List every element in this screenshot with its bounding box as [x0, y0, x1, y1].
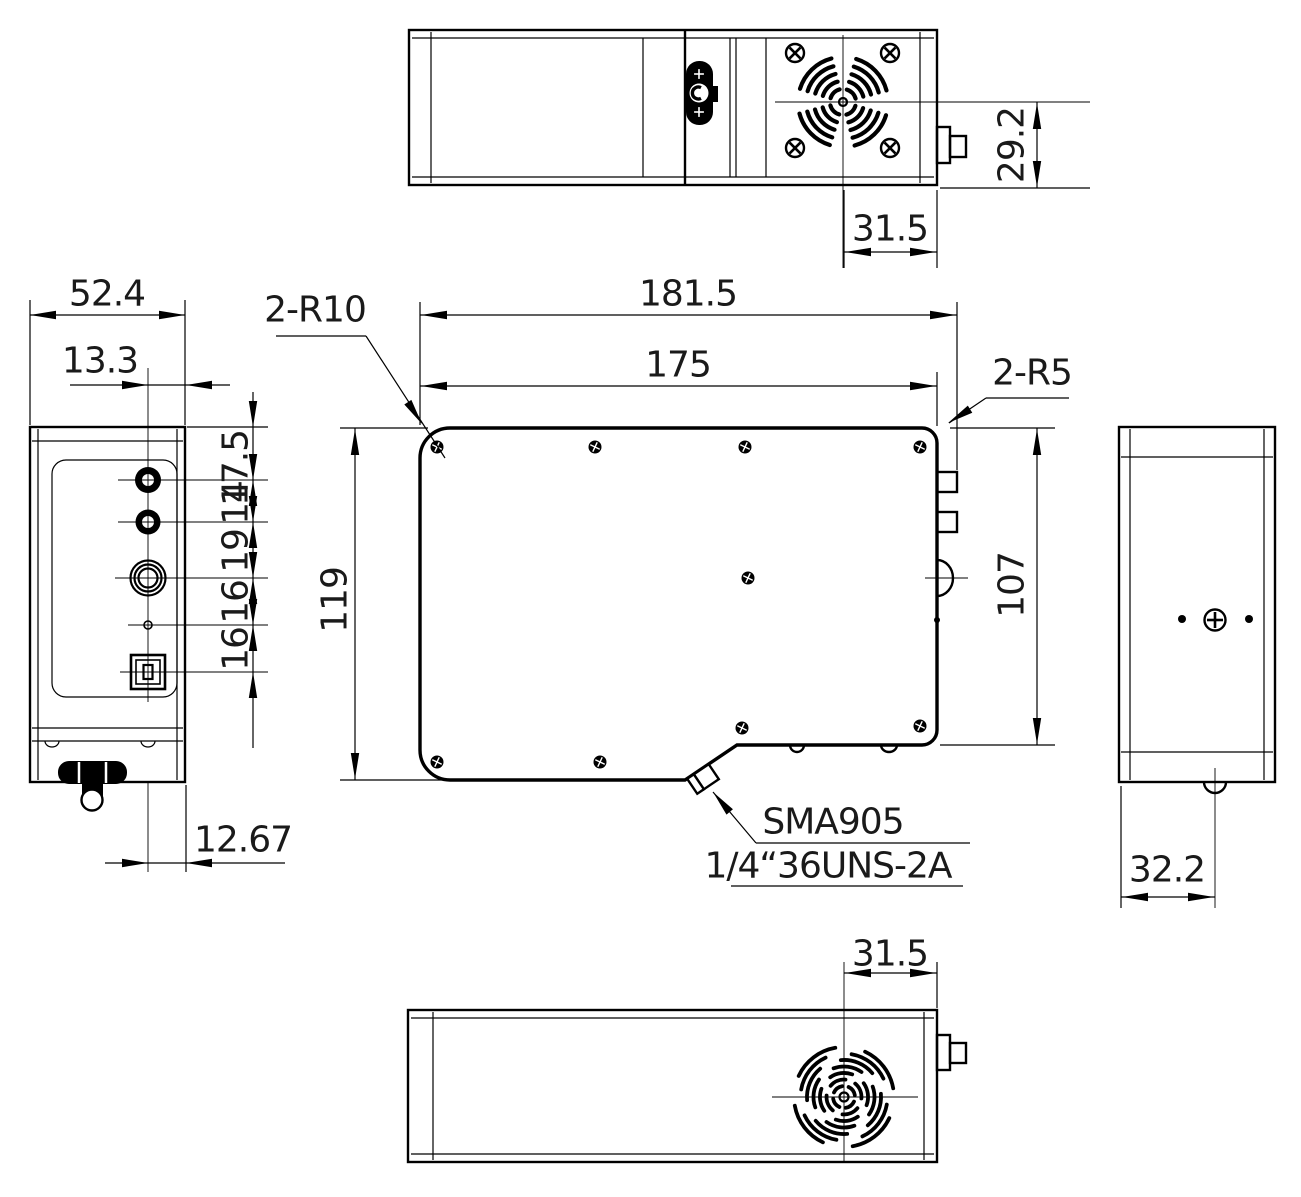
screw-icon: [594, 756, 607, 769]
screw-icon: [742, 572, 755, 585]
dimension-arrow: [1033, 429, 1041, 455]
dim-text-32-2: 32.2: [1129, 850, 1205, 891]
fan-grille-arc: [847, 90, 856, 99]
dim-front-body: 175: [420, 345, 937, 427]
fan-grille-top: [786, 44, 899, 157]
dim-left-center-offset: 13.3: [62, 341, 230, 386]
dimension-arrow: [186, 381, 212, 389]
fan-grille-arc: [830, 1073, 852, 1077]
fan-grille-arc: [800, 59, 831, 89]
dim-text-31-5-bottom: 31.5: [852, 934, 928, 975]
dimension-arrow: [930, 311, 956, 319]
fan-grille-arc: [855, 115, 886, 145]
label-text-thread: 1/4“36UNS-2A: [704, 846, 952, 887]
dim-text-119: 119: [315, 567, 356, 633]
fan-grille-arc: [827, 1122, 855, 1128]
fan-grille-arc: [820, 1089, 824, 1111]
dimension-arrow: [421, 311, 447, 319]
bottom-view: [408, 962, 966, 1163]
dimension-arrow: [351, 753, 359, 779]
fan-grille-arc: [849, 1087, 855, 1095]
top-view-outline: [409, 30, 937, 185]
dimension-arrow: [122, 381, 148, 389]
phillips-screw-icon: [881, 139, 899, 157]
dim-text-12-67: 12.67: [194, 820, 292, 861]
dimension-arrow: [910, 382, 936, 390]
dim-bottom-fan-offset: 31.5: [844, 934, 937, 1009]
top-view-right-connector-flange: [937, 127, 950, 163]
dim-text-52-4: 52.4: [69, 274, 145, 315]
drawing-part: [711, 86, 718, 102]
dimension-arrow: [1033, 718, 1041, 744]
dim-text-107: 107: [992, 552, 1033, 618]
right-view-hole-right: [1245, 615, 1253, 623]
dimension-arrow: [946, 406, 973, 427]
label-text-2-r10: 2-R10: [264, 290, 366, 331]
dim-text-175: 175: [645, 345, 711, 386]
dim-text-29-2: 29.2: [992, 107, 1033, 183]
top-view: [409, 30, 1090, 268]
front-view-screws: [431, 441, 927, 769]
right-tab-1: [937, 472, 957, 492]
fan-grille-arc: [846, 106, 855, 115]
dimension-arrow: [1033, 161, 1041, 187]
dim-text-31-5-top: 31.5: [852, 209, 928, 250]
fan-grille-arc: [836, 1117, 858, 1121]
label-text-sma905: SMA905: [762, 802, 903, 843]
dimension-arrow: [122, 859, 148, 867]
dimension-arrow: [1033, 103, 1041, 129]
right-side-view: [1119, 427, 1275, 908]
dim-right-offset: 32.2: [1121, 786, 1215, 908]
bottom-view-right-connector-plug: [950, 1043, 966, 1063]
dimension-arrow: [421, 382, 447, 390]
screw-icon: [589, 441, 602, 454]
phillips-screw-icon: [786, 139, 804, 157]
fan-grille-arc: [869, 1087, 875, 1115]
dimension-arrow: [351, 429, 359, 455]
dimension-arrow: [249, 672, 257, 698]
dim-text-181-5: 181.5: [639, 274, 737, 315]
right-tab-2: [937, 512, 957, 532]
foot-notch-left: [45, 741, 59, 747]
dimension-arrow: [30, 311, 56, 319]
fan-grille-arc: [833, 1099, 839, 1107]
screw-icon: [914, 441, 927, 454]
fan-grille-arc: [813, 1080, 819, 1108]
dim-text-19: 19: [216, 529, 257, 573]
bottom-view-right-connector-flange: [937, 1035, 950, 1070]
phillips-screw-icon: [786, 44, 804, 62]
right-edge-pin: [934, 617, 940, 623]
sma-adapter-top: [686, 61, 718, 125]
dimension-arrow: [1122, 893, 1148, 901]
dim-top-height: 29.2: [940, 102, 1090, 188]
screw-icon: [736, 722, 749, 735]
sma-connector-bottom: [58, 761, 127, 811]
fan-grille-arc: [834, 1086, 842, 1092]
screw-icon: [739, 441, 752, 454]
dimension-arrow: [159, 311, 185, 319]
technical-drawing-page: 29.2 31.5: [0, 0, 1301, 1197]
multiview-technical-drawing: 29.2 31.5: [0, 0, 1301, 1197]
dim-left-bottom-offset: 12.67: [105, 785, 292, 872]
fan-grille-arc: [830, 105, 839, 114]
screw-icon: [914, 720, 927, 733]
fan-grille-arc: [846, 1102, 854, 1108]
dimension-arrow: [249, 401, 257, 427]
fan-grille-arc: [831, 89, 840, 98]
fan-grille-arc: [834, 1066, 862, 1072]
dim-front-height: 119: [315, 428, 456, 780]
fan-grille-arc: [864, 1083, 868, 1105]
screw-icon: [431, 441, 444, 454]
dimension-arrow: [1188, 893, 1214, 901]
right-view-screw: [1205, 610, 1226, 631]
dim-text-13-3: 13.3: [62, 341, 138, 382]
leader-line: [366, 336, 445, 458]
drawing-part: [82, 790, 103, 811]
right-view-outline: [1119, 427, 1275, 782]
dim-top-fan-offset: 31.5: [844, 190, 937, 268]
phillips-screw-icon: [692, 105, 706, 119]
fan-grille-arc: [800, 114, 830, 145]
label-text-2-r5: 2-R5: [992, 353, 1072, 394]
front-view-outline: [420, 428, 937, 780]
sma-nut-front: [687, 764, 719, 793]
fan-grille-arc: [856, 59, 886, 90]
phillips-screw-icon: [692, 67, 706, 81]
right-view-hole-left: [1178, 615, 1186, 623]
front-view: [420, 428, 968, 794]
screw-icon: [431, 756, 444, 769]
foot-notch-right: [141, 741, 155, 747]
top-view-right-connector-plug: [950, 136, 966, 157]
label-sma905: SMA905 1/4“36UNS-2A: [704, 792, 970, 887]
phillips-screw-icon: [881, 44, 899, 62]
